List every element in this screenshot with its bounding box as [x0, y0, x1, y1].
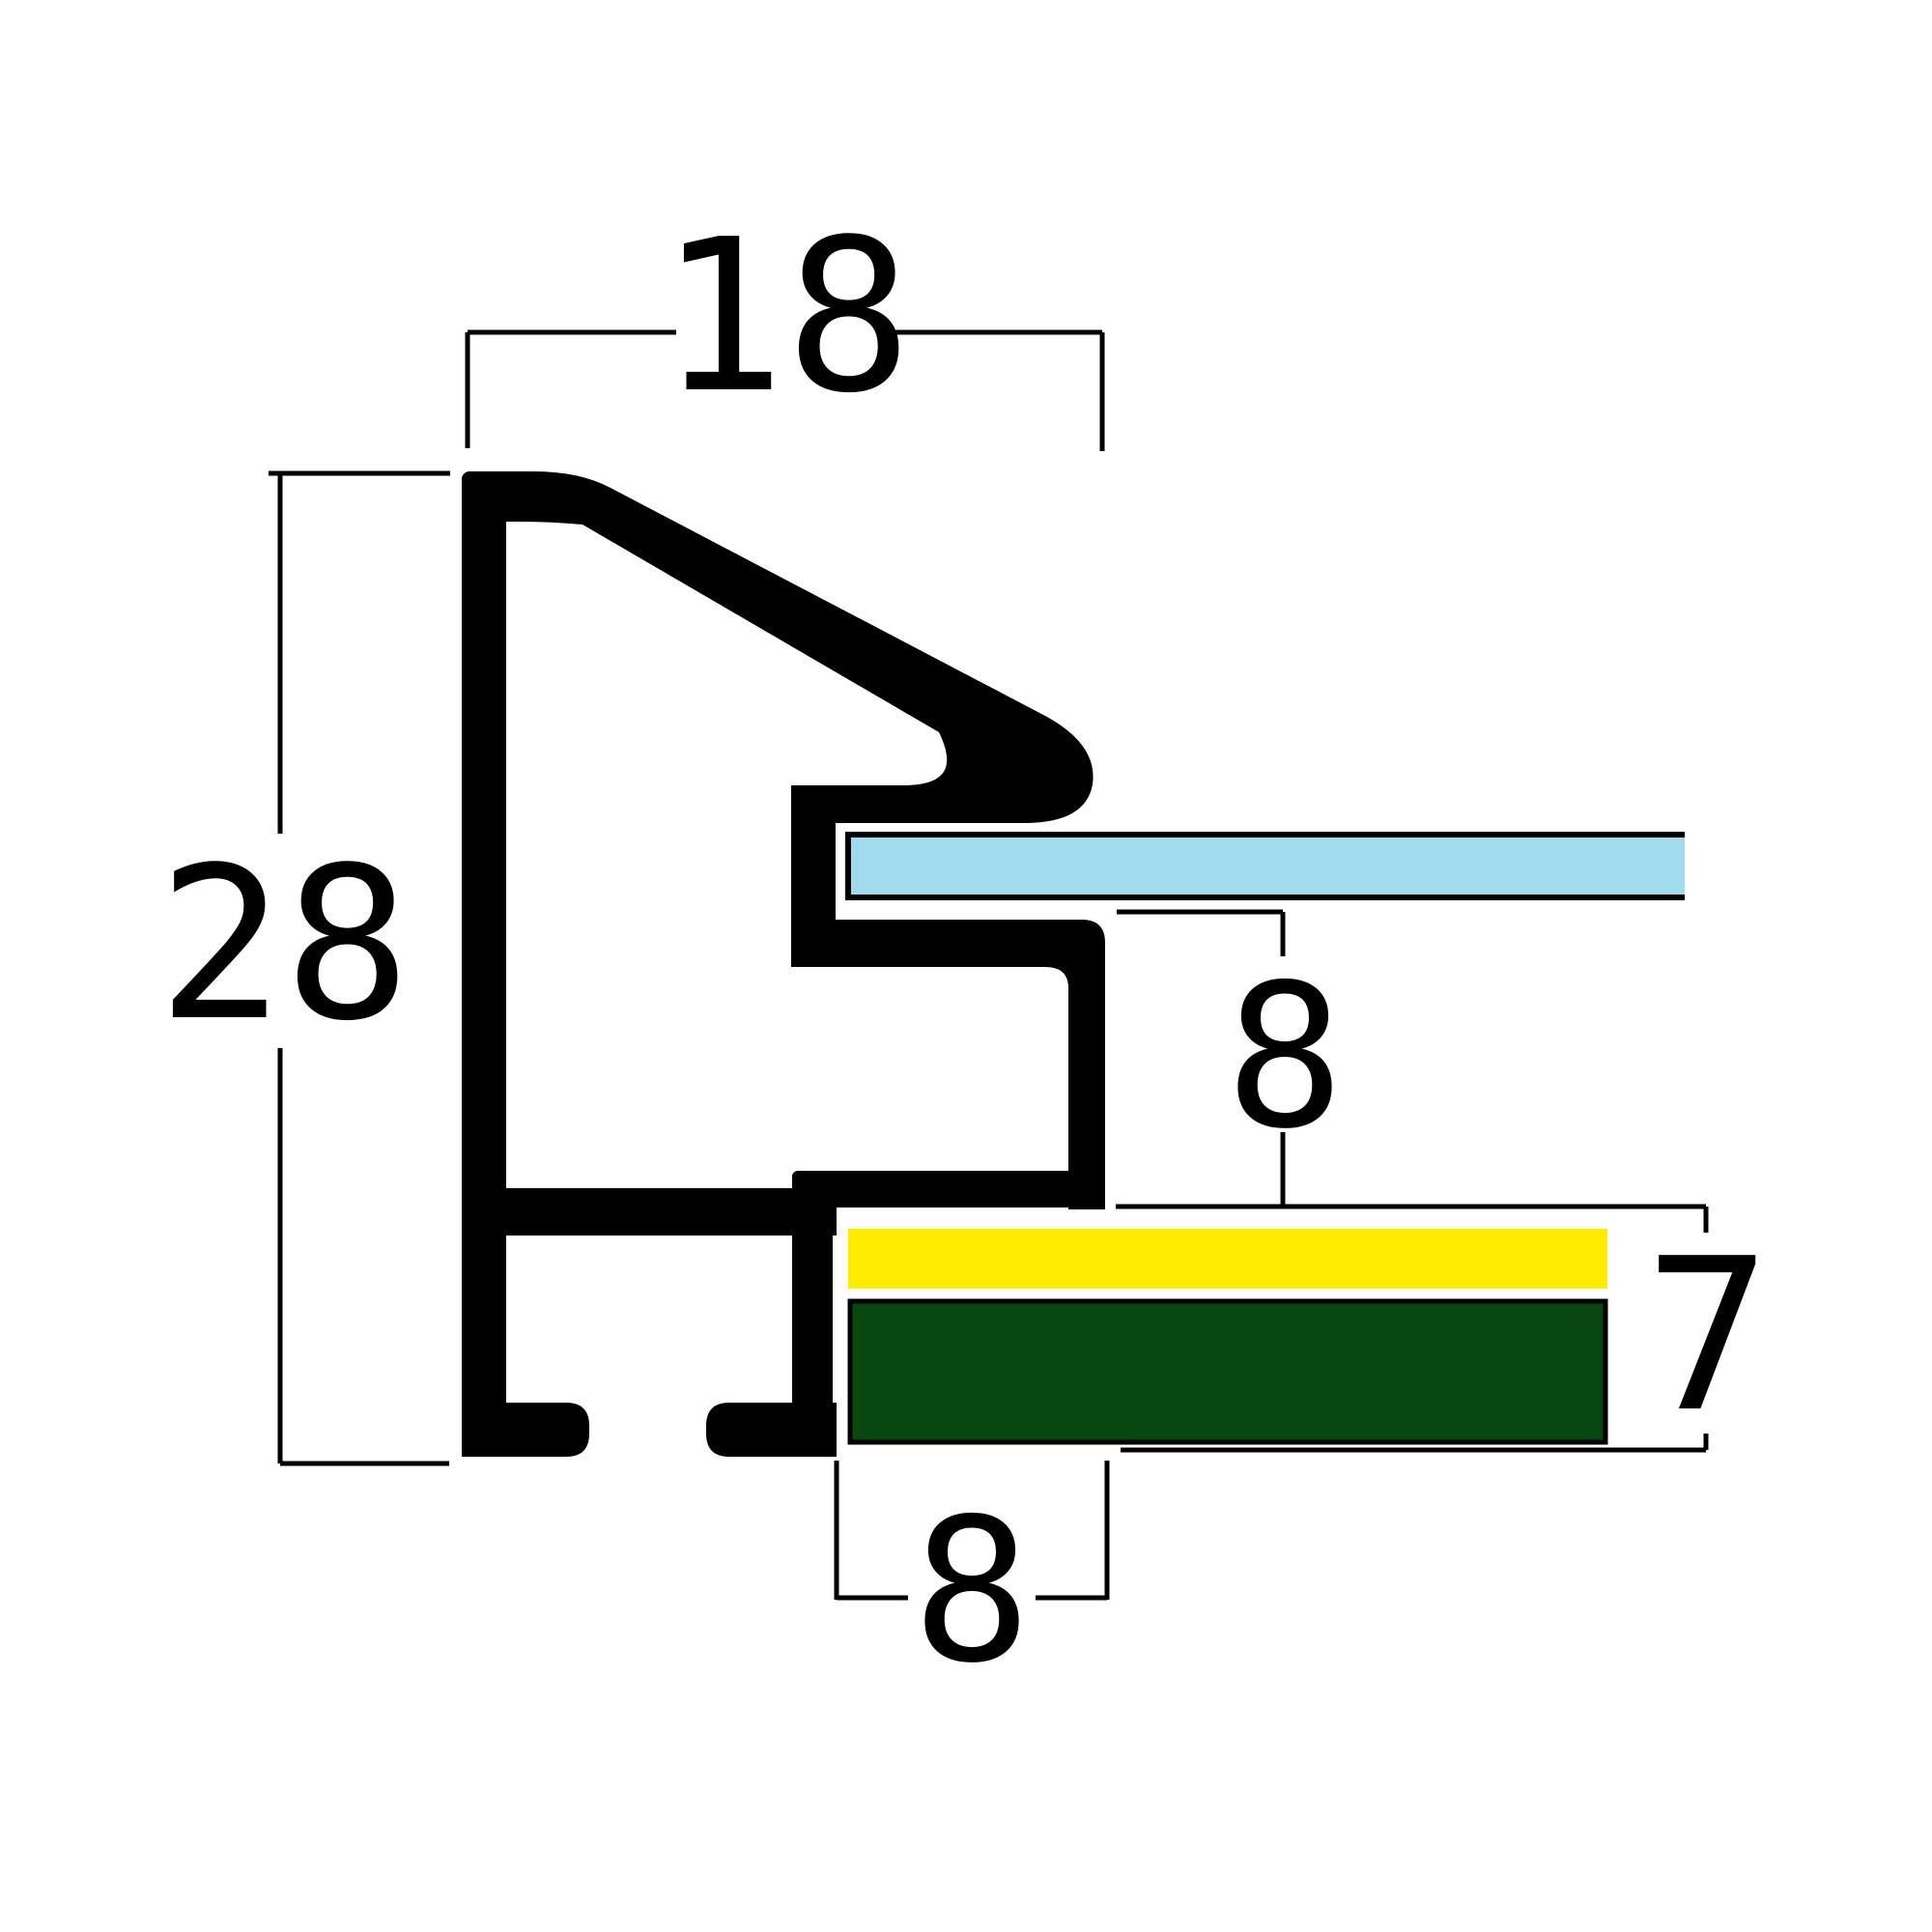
profile-top-slope: [462, 471, 1094, 823]
glass-pane: [848, 835, 1685, 897]
profile-foot-outer: [462, 1403, 589, 1457]
dim-28-label: 28: [157, 823, 412, 1067]
profile-foot-inner: [706, 1403, 837, 1457]
dim-8-mid-label: 8: [1225, 943, 1344, 1173]
profile-left-wall: [462, 471, 506, 1457]
backing-board: [850, 1301, 1605, 1442]
profile-rabbet-shelf-and-back-wall: [791, 920, 1105, 1209]
profile-base-band: [462, 1188, 837, 1236]
dim-18-label: 18: [659, 195, 913, 440]
dim-7-label: 7: [1644, 1214, 1771, 1459]
drawing-canvas: 18 28 8 7 8: [0, 0, 1932, 1932]
dim-8-bottom-label: 8: [912, 1477, 1031, 1707]
mat-board: [848, 1229, 1607, 1289]
moulding-profile-diagram: 18 28 8 7 8: [0, 0, 1932, 1932]
profile-shelf-step: [792, 1171, 1105, 1207]
